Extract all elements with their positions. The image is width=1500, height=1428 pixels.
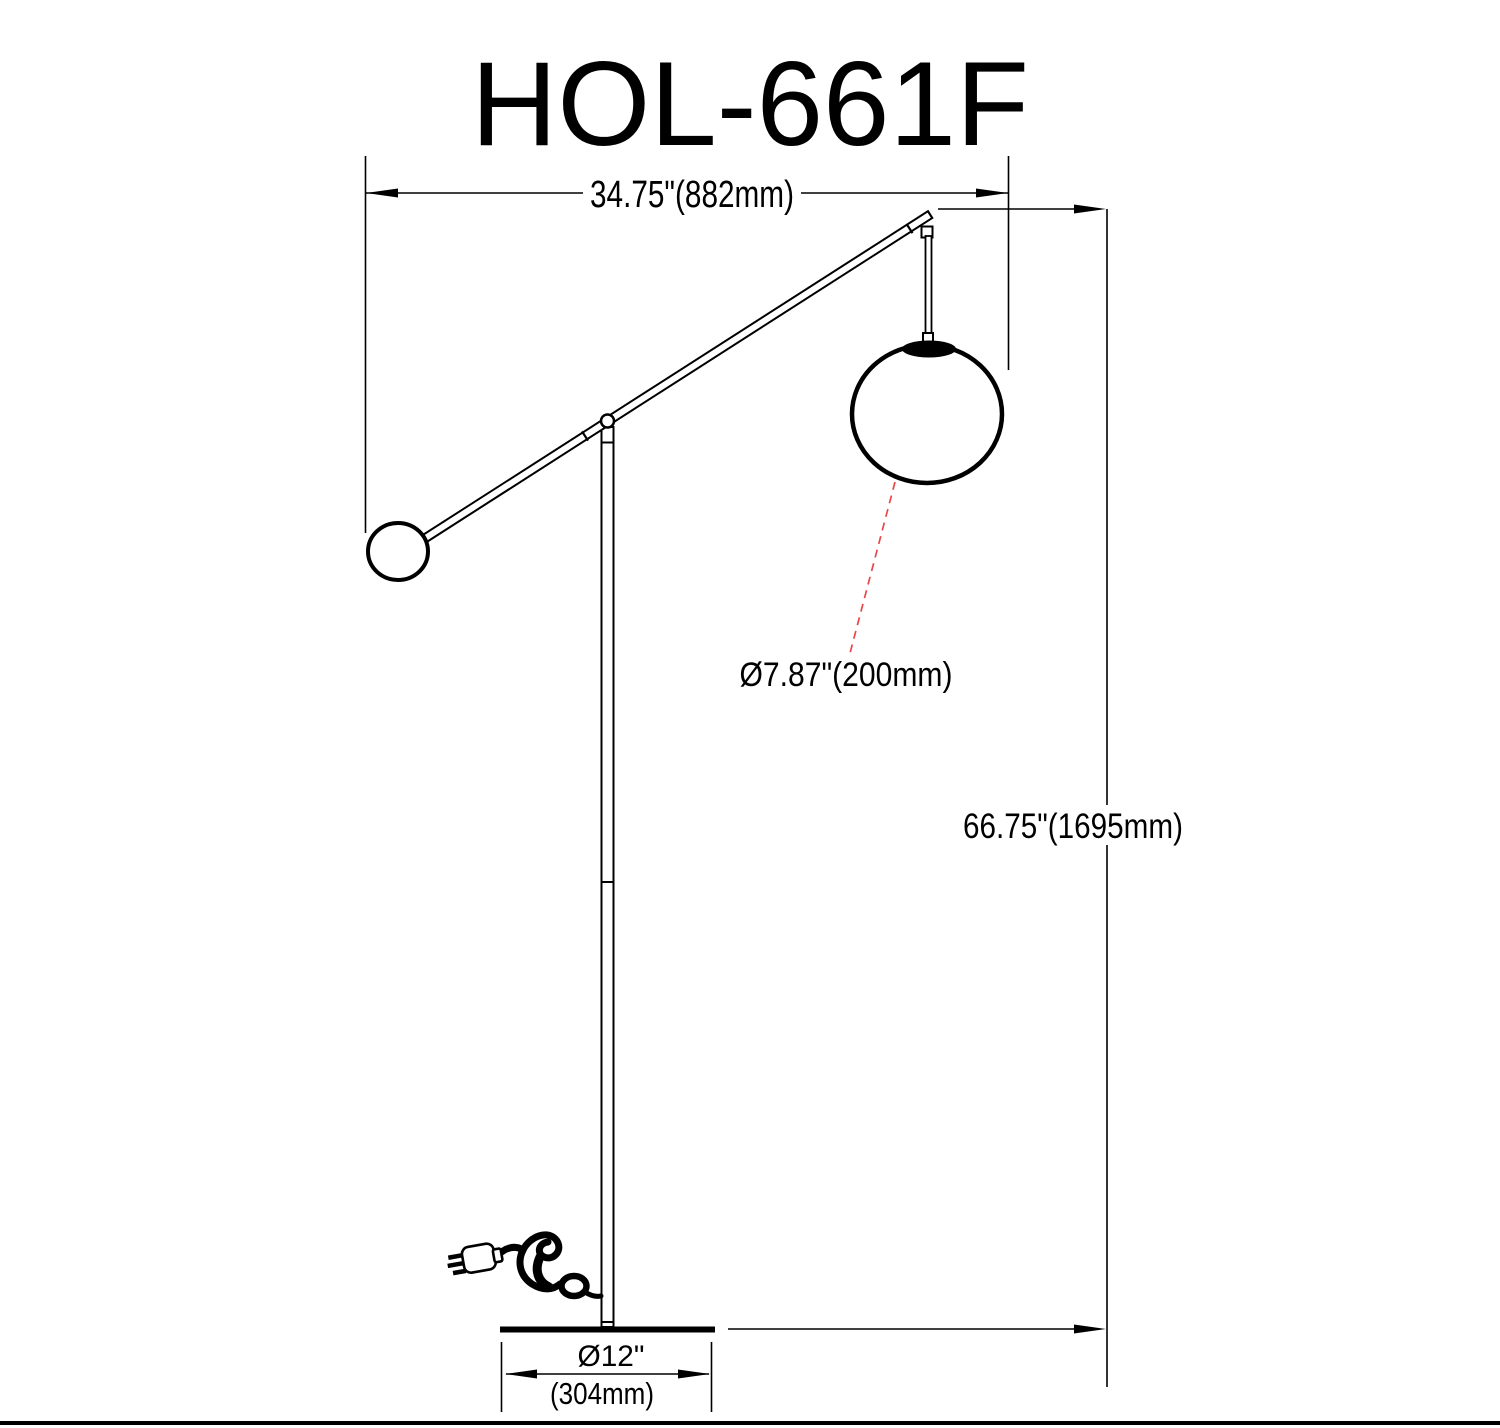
plug-neck xyxy=(493,1248,503,1262)
technical-drawing: HOL-661F 34.75"(882mm) 66.75"(1695mm) xyxy=(0,0,1500,1428)
base-diameter-mm-label: (304mm) xyxy=(550,1376,654,1411)
glass-globe xyxy=(852,345,1002,483)
drop-rod xyxy=(926,236,932,336)
width-dimension-label: 34.75"(882mm) xyxy=(590,174,794,216)
drawing-page: HOL-661F 34.75"(882mm) 66.75"(1695mm) xyxy=(0,0,1500,1428)
pivot-joint xyxy=(601,415,614,428)
base-diameter-inches-label: Ø12" xyxy=(578,1340,645,1373)
page-title: HOL-661F xyxy=(471,37,1029,171)
globe-dimension-label: Ø7.87"(200mm) xyxy=(740,656,953,694)
plug-body xyxy=(461,1243,497,1274)
bottom-border-line xyxy=(0,1421,1500,1425)
counterweight xyxy=(368,523,428,580)
height-dimension-label: 66.75"(1695mm) xyxy=(963,807,1183,846)
globe-cap xyxy=(902,341,956,358)
base-plate xyxy=(500,1327,715,1333)
lamp-pole xyxy=(602,427,614,1327)
